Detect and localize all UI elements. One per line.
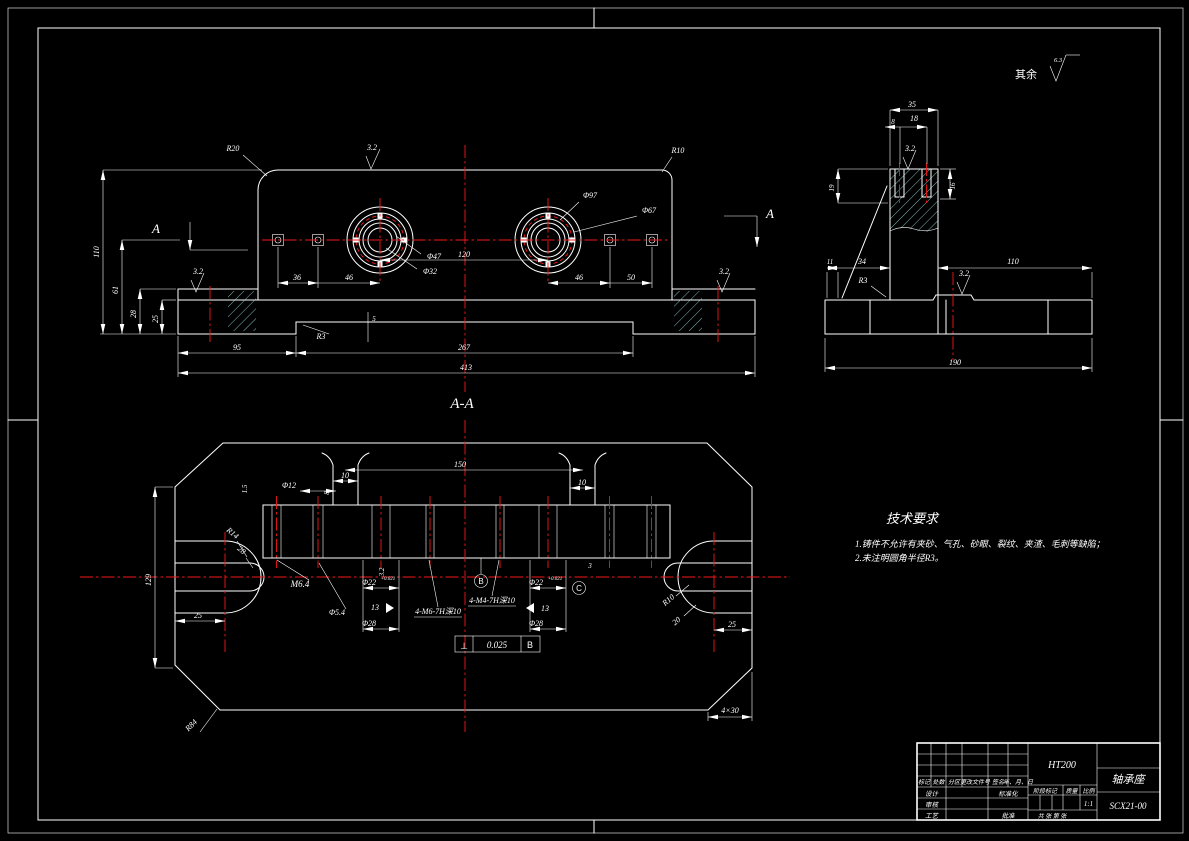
- role-check: 审核: [925, 801, 940, 809]
- front-centerlines: [210, 145, 718, 392]
- dim-36: 36: [292, 273, 301, 282]
- tech-req-line2: 2.未注明圆角半径R3。: [855, 553, 944, 563]
- stage-label: 阶段标记: [1033, 787, 1058, 795]
- material: HT200: [1047, 760, 1076, 771]
- dim-20-slot: 20: [670, 615, 682, 627]
- dim-50: 50: [627, 273, 635, 282]
- dim-3: 3: [587, 562, 592, 570]
- label-r10: R10: [671, 146, 685, 155]
- sf-column: 3.2: [904, 144, 915, 153]
- dim-267: 267: [458, 343, 471, 352]
- technical-requirements: 技术要求 1.铸件不允许有夹砂、气孔、砂眼、裂纹、夹渣、毛刺等缺陷； 2.未注明…: [855, 511, 1105, 563]
- dim-phi22-right: Φ22: [529, 578, 543, 587]
- section-dimensions: 150 10 10 Φ12 1.5 8 M6.4 Φ5.4 3.2 Φ22 +0…: [144, 460, 752, 734]
- dim-61: 61: [111, 286, 120, 294]
- label-phi47: Φ47: [427, 252, 442, 261]
- dim-phi12: Φ12: [282, 481, 296, 490]
- section-mark-right: A: [765, 206, 774, 221]
- header-count: 处数: [932, 778, 945, 786]
- section-holes: [272, 505, 656, 558]
- weight-label: 质量: [1065, 787, 1078, 795]
- dim-34: 34: [857, 257, 866, 266]
- scale-value: 1:1: [1084, 800, 1093, 808]
- label-phi67: Φ67: [642, 206, 657, 215]
- datum-c: C: [576, 584, 582, 593]
- header-date: 年、月、日: [1003, 778, 1034, 786]
- role-approve: 批准: [1002, 812, 1017, 820]
- dim-18: 18: [910, 114, 918, 123]
- dim-129: 129: [144, 574, 153, 586]
- gdt-symbol: ⊥: [460, 641, 468, 651]
- dim-19: 19: [828, 184, 836, 192]
- surface-default-value: 6.3: [1054, 57, 1063, 64]
- label-r20: R20: [226, 144, 240, 153]
- label-thread-left: 4-M6-7H深10: [415, 607, 461, 616]
- dim-25-right: 25: [728, 620, 736, 629]
- dim-1-5: 1.5: [241, 484, 249, 493]
- gdt-value: 0.025: [487, 640, 508, 650]
- dim-46a: 46: [345, 273, 353, 282]
- label-phi5-4: Φ5.4: [329, 608, 345, 617]
- title-block: 标记 处数 分区 更改文件号 签名 年、月、日 设计 标准化 审核 工艺 批准 …: [917, 743, 1160, 820]
- cad-drawing-screenshot: 其余 6.3: [0, 0, 1189, 841]
- role-process: 工艺: [925, 812, 940, 820]
- label-phi97: Φ97: [583, 191, 598, 200]
- tech-req-line1: 1.铸件不允许有夹砂、气孔、砂眼、裂纹、夹渣、毛刺等缺陷；: [855, 539, 1105, 549]
- section-view: A-A: [80, 396, 790, 734]
- dim-110-side: 110: [1007, 257, 1018, 266]
- section-mark-left: A: [151, 221, 160, 236]
- dim-phi22-left-tol: +0.021: [381, 577, 396, 582]
- dim-28: 28: [129, 310, 138, 318]
- dim-10-left: 10: [341, 471, 349, 480]
- front-view: 36 46 46 50 120 95 267 413 110 61 28 25 …: [92, 143, 774, 392]
- header-mark: 标记: [918, 778, 931, 786]
- label-r3: R3: [316, 332, 326, 341]
- sheet-border: [8, 8, 1183, 833]
- dim-46b: 46: [575, 273, 583, 282]
- dim-phi28-left: Φ28: [362, 619, 376, 628]
- datum-b: B: [478, 577, 483, 586]
- label-r84: R84: [183, 717, 199, 733]
- dim-413: 413: [460, 363, 472, 372]
- section-centerlines: [80, 420, 790, 732]
- sf-top: 3.2: [366, 143, 377, 152]
- section-geometry: [80, 420, 790, 732]
- front-view-geometry: [178, 145, 755, 392]
- dim-120: 120: [458, 250, 470, 259]
- dim-phi28-right: Φ28: [529, 619, 543, 628]
- dim-phi22-left: Φ22: [362, 578, 376, 587]
- label-phi32: Φ32: [423, 267, 437, 276]
- tech-req-title: 技术要求: [886, 511, 940, 526]
- role-standard: 标准化: [998, 790, 1019, 798]
- section-band: [263, 505, 670, 558]
- dim-25-left: 25: [194, 611, 202, 620]
- dim-110: 110: [92, 246, 101, 257]
- dim-28-slot: 28: [236, 544, 248, 556]
- dim-11: 11: [827, 258, 833, 266]
- drawing-canvas: 其余 6.3: [0, 0, 1189, 841]
- dim-chamfer: 4×30: [721, 706, 738, 715]
- dim-5: 5: [372, 315, 376, 323]
- dim-150: 150: [454, 460, 466, 469]
- label-r10-slot: R10: [660, 592, 676, 608]
- dim-8-section: 8: [323, 491, 331, 495]
- dim-35: 35: [907, 100, 916, 109]
- sheet-label: 共 张 第 张: [1038, 812, 1068, 820]
- dim-8: 8: [891, 118, 895, 126]
- header-doc: 更改文件号: [960, 778, 991, 786]
- dim-25: 25: [151, 315, 160, 323]
- dim-phi22-right-tol: +0.021: [548, 577, 563, 582]
- label-r14-slot: R14: [224, 525, 240, 541]
- title-block-text: 标记 处数 分区 更改文件号 签名 年、月、日 设计 标准化 审核 工艺 批准 …: [918, 760, 1147, 820]
- drawing-number: SCX21-00: [1110, 801, 1147, 811]
- gdt-frame: ⊥ 0.025 B: [455, 636, 540, 652]
- label-r3-side: R3: [858, 276, 868, 285]
- depth-triangle-left: [386, 603, 394, 613]
- dim-190: 190: [949, 358, 961, 367]
- sf-right: 3.2: [718, 267, 729, 276]
- hatch-right-pedestal: [674, 291, 702, 331]
- dim-13-right: 13: [541, 604, 549, 613]
- gdt-datum: B: [527, 640, 533, 650]
- role-design: 设计: [925, 790, 940, 798]
- section-title: A-A: [449, 396, 474, 412]
- dim-95: 95: [233, 343, 241, 352]
- roughness-icon: [366, 149, 380, 169]
- part-name: 轴承座: [1112, 773, 1147, 786]
- dim-16: 16: [949, 182, 957, 190]
- default-roughness-note: 其余 6.3: [1015, 55, 1080, 81]
- dim-13-left: 13: [371, 603, 379, 612]
- dim-10-right: 10: [578, 478, 586, 487]
- label-thread-center: 4-M4-7H深10: [469, 596, 515, 605]
- surface-default-label: 其余: [1015, 67, 1037, 81]
- section-cut-marks: A A: [151, 206, 774, 250]
- side-view-dimensions: 35 8 18 3.2 19 16 11 34 R3 110 3.2 190: [825, 100, 1092, 372]
- sf-cb-left: 3.2: [378, 567, 386, 577]
- scale-label: 比例: [1082, 787, 1095, 795]
- label-m6: M6.4: [290, 579, 310, 589]
- sf-base: 3.2: [958, 269, 969, 278]
- side-view: 35 8 18 3.2 19 16 11 34 R3 110 3.2 190: [825, 100, 1092, 372]
- hatch-left-pedestal: [228, 291, 256, 331]
- sf-left: 3.2: [192, 267, 203, 276]
